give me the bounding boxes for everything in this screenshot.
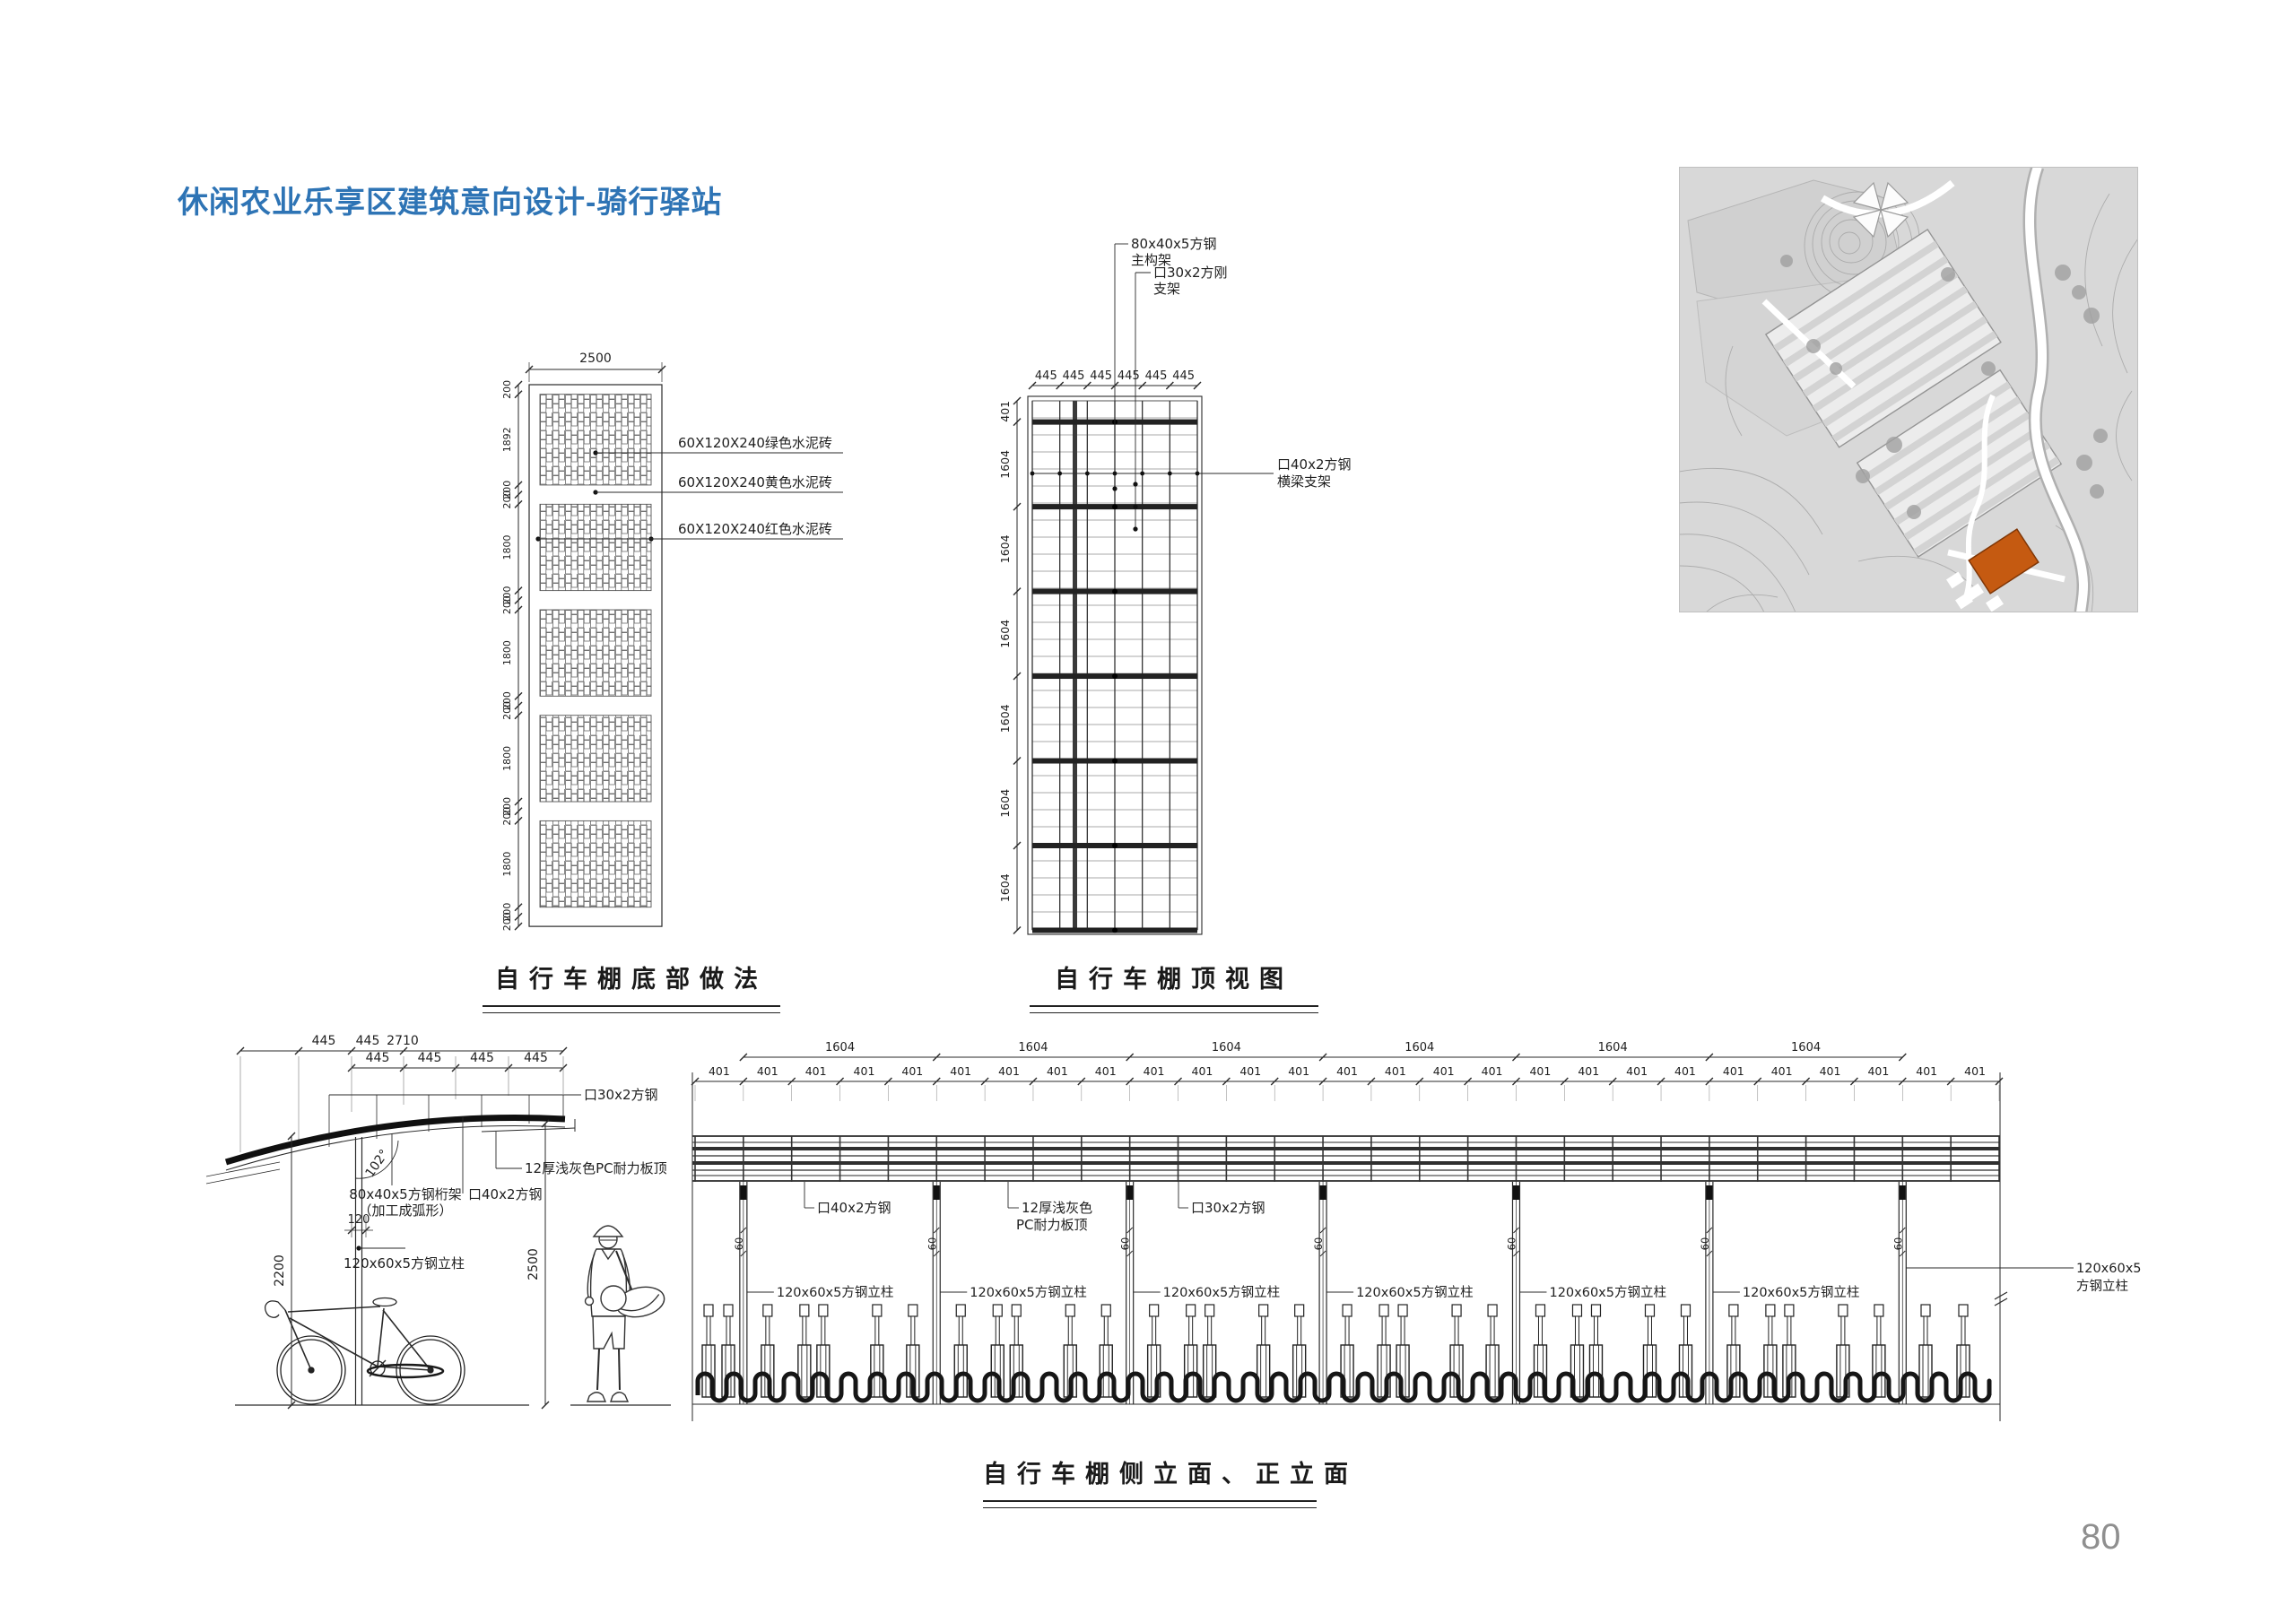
svg-text:1800: 1800 xyxy=(501,852,513,877)
svg-text:200: 200 xyxy=(501,595,513,614)
svg-text:401: 401 xyxy=(1482,1064,1503,1078)
svg-text:401: 401 xyxy=(1529,1064,1551,1078)
svg-text:120x60x5方钢立柱: 120x60x5方钢立柱 xyxy=(777,1285,894,1300)
svg-text:445: 445 xyxy=(470,1051,494,1065)
svg-text:1892: 1892 xyxy=(501,427,513,452)
svg-text:1604: 1604 xyxy=(998,873,1012,902)
svg-text:2500: 2500 xyxy=(526,1248,541,1280)
svg-text:401: 401 xyxy=(1626,1064,1648,1078)
svg-text:支架: 支架 xyxy=(1153,281,1180,297)
svg-text:60: 60 xyxy=(733,1237,745,1251)
caption-top-view: 自行车棚顶视图 xyxy=(1030,959,1318,1013)
svg-text:445: 445 xyxy=(312,1034,336,1048)
svg-text:PC耐力板顶: PC耐力板顶 xyxy=(1016,1217,1088,1233)
svg-text:60: 60 xyxy=(1119,1237,1132,1251)
document-page: 休闲农业乐享区建筑意向设计-骑行驿站 250020018922002001800… xyxy=(0,0,2296,1623)
svg-text:401: 401 xyxy=(1288,1064,1309,1078)
svg-text:120x60x5方钢立柱: 120x60x5方钢立柱 xyxy=(1743,1285,1860,1300)
svg-text:120x60x5方钢立柱: 120x60x5方钢立柱 xyxy=(1549,1285,1666,1300)
svg-text:1800: 1800 xyxy=(501,534,513,560)
svg-text:口30x2方钢: 口30x2方钢 xyxy=(584,1087,658,1103)
svg-text:200: 200 xyxy=(501,701,513,720)
caption-underline xyxy=(1030,1005,1318,1013)
caption-underline xyxy=(983,1500,1317,1508)
drawing-side-elevation: 4454452710445445445445口30x2方钢102°80x40x5… xyxy=(206,1034,671,1409)
svg-text:200: 200 xyxy=(501,490,513,508)
svg-text:60X120X240黄色水泥砖: 60X120X240黄色水泥砖 xyxy=(678,474,832,490)
svg-text:60X120X240绿色水泥砖: 60X120X240绿色水泥砖 xyxy=(678,435,832,451)
svg-text:401: 401 xyxy=(1385,1064,1406,1078)
svg-text:401: 401 xyxy=(1674,1064,1696,1078)
svg-text:60: 60 xyxy=(1505,1237,1518,1251)
svg-text:200: 200 xyxy=(501,807,513,826)
svg-text:1604: 1604 xyxy=(1598,1041,1628,1055)
svg-text:401: 401 xyxy=(950,1064,971,1078)
svg-text:401: 401 xyxy=(1578,1064,1599,1078)
svg-text:445: 445 xyxy=(366,1051,390,1065)
caption-elevations: 自行车棚侧立面、正立面 xyxy=(983,1454,1317,1508)
svg-text:1604: 1604 xyxy=(825,1041,855,1055)
svg-text:2710: 2710 xyxy=(387,1034,419,1048)
svg-text:60X120X240红色水泥砖: 60X120X240红色水泥砖 xyxy=(678,521,832,537)
svg-text:401: 401 xyxy=(1095,1064,1117,1078)
svg-text:102°: 102° xyxy=(362,1147,391,1180)
svg-text:1604: 1604 xyxy=(1212,1041,1241,1055)
svg-text:1604: 1604 xyxy=(998,620,1012,648)
svg-text:401: 401 xyxy=(1916,1064,1937,1078)
caption-top-view-text: 自行车棚顶视图 xyxy=(1055,966,1293,994)
svg-text:401: 401 xyxy=(1144,1064,1165,1078)
svg-text:120x60x5方钢立柱: 120x60x5方钢立柱 xyxy=(1163,1285,1281,1300)
svg-text:120x60x5方钢立柱: 120x60x5方钢立柱 xyxy=(970,1285,1087,1300)
svg-text:445: 445 xyxy=(1172,369,1195,383)
svg-text:120x60x5方钢立柱: 120x60x5方钢立柱 xyxy=(1356,1285,1474,1300)
svg-text:401: 401 xyxy=(1192,1064,1213,1078)
drawing-front-elevation: 4014014014014014014014014014014014014014… xyxy=(691,1041,2142,1421)
svg-text:80x40x5方钢桁架: 80x40x5方钢桁架 xyxy=(349,1186,461,1202)
svg-text:1604: 1604 xyxy=(998,704,1012,733)
svg-text:120: 120 xyxy=(348,1213,370,1227)
drawing-top-view: 4454454454454454454011604160416041604160… xyxy=(998,236,1352,934)
svg-text:401: 401 xyxy=(1239,1064,1261,1078)
svg-text:12厚浅灰色: 12厚浅灰色 xyxy=(1022,1200,1092,1216)
svg-text:401: 401 xyxy=(1047,1064,1068,1078)
svg-text:120x60x5: 120x60x5 xyxy=(2076,1262,2142,1276)
svg-text:1604: 1604 xyxy=(1018,1041,1048,1055)
svg-text:401: 401 xyxy=(1433,1064,1455,1078)
svg-text:401: 401 xyxy=(1867,1064,1889,1078)
svg-text:445: 445 xyxy=(418,1051,442,1065)
person-figure xyxy=(586,1226,667,1402)
svg-text:445: 445 xyxy=(1145,369,1168,383)
svg-text:1604: 1604 xyxy=(998,534,1012,563)
svg-text:1604: 1604 xyxy=(1791,1041,1821,1055)
svg-text:401: 401 xyxy=(854,1064,875,1078)
svg-text:口40x2方钢: 口40x2方钢 xyxy=(468,1186,543,1202)
svg-text:60: 60 xyxy=(1699,1237,1711,1251)
svg-text:口30x2方钢: 口30x2方钢 xyxy=(1191,1200,1265,1216)
svg-text:401: 401 xyxy=(998,401,1012,422)
svg-text:口40x2方钢: 口40x2方钢 xyxy=(1277,456,1352,473)
svg-text:401: 401 xyxy=(998,1064,1020,1078)
svg-text:12厚浅灰色PC耐力板顶: 12厚浅灰色PC耐力板顶 xyxy=(525,1160,667,1176)
svg-text:401: 401 xyxy=(1964,1064,1986,1078)
svg-text:60: 60 xyxy=(1312,1237,1325,1251)
svg-text:1800: 1800 xyxy=(501,640,513,665)
svg-text:445: 445 xyxy=(356,1034,380,1048)
site-location-map xyxy=(1679,167,2138,612)
svg-text:1604: 1604 xyxy=(1405,1041,1434,1055)
svg-text:445: 445 xyxy=(1063,369,1085,383)
svg-text:445: 445 xyxy=(524,1051,548,1065)
caption-bottom-detail-text: 自行车棚底部做法 xyxy=(495,966,768,994)
svg-text:401: 401 xyxy=(1723,1064,1744,1078)
svg-text:60: 60 xyxy=(926,1237,938,1251)
svg-text:200: 200 xyxy=(501,912,513,931)
svg-text:401: 401 xyxy=(757,1064,778,1078)
svg-text:口30x2方刚: 口30x2方刚 xyxy=(1153,265,1228,281)
svg-text:1604: 1604 xyxy=(998,789,1012,818)
svg-text:200: 200 xyxy=(501,380,513,399)
caption-bottom-detail: 自行车棚底部做法 xyxy=(483,959,780,1013)
caption-underline xyxy=(483,1005,780,1013)
svg-text:120x60x5方钢立柱: 120x60x5方钢立柱 xyxy=(344,1255,465,1271)
svg-text:80x40x5方钢: 80x40x5方钢 xyxy=(1131,236,1216,252)
svg-text:401: 401 xyxy=(805,1064,827,1078)
svg-text:1604: 1604 xyxy=(998,450,1012,479)
svg-text:401: 401 xyxy=(1820,1064,1841,1078)
svg-text:横梁支架: 横梁支架 xyxy=(1277,473,1331,490)
svg-text:（加工成弧形）: （加工成弧形） xyxy=(358,1202,452,1219)
svg-text:2200: 2200 xyxy=(273,1254,287,1287)
svg-text:2500: 2500 xyxy=(579,352,612,366)
caption-elevations-text: 自行车棚侧立面、正立面 xyxy=(983,1461,1358,1488)
svg-text:445: 445 xyxy=(1118,369,1140,383)
drawing-bottom-detail: 2500200189220020018002002001800200200180… xyxy=(501,352,843,931)
page-number: 80 xyxy=(2081,1517,2121,1558)
svg-text:401: 401 xyxy=(709,1064,730,1078)
svg-text:口40x2方钢: 口40x2方钢 xyxy=(817,1200,891,1216)
svg-text:401: 401 xyxy=(901,1064,923,1078)
svg-text:401: 401 xyxy=(1336,1064,1358,1078)
svg-text:60: 60 xyxy=(1892,1237,1904,1251)
svg-text:1800: 1800 xyxy=(501,746,513,771)
svg-text:方钢立柱: 方钢立柱 xyxy=(2076,1279,2128,1294)
svg-text:445: 445 xyxy=(1090,369,1112,383)
bicycle-figure xyxy=(265,1298,465,1405)
svg-text:401: 401 xyxy=(1771,1064,1793,1078)
svg-text:445: 445 xyxy=(1035,369,1057,383)
